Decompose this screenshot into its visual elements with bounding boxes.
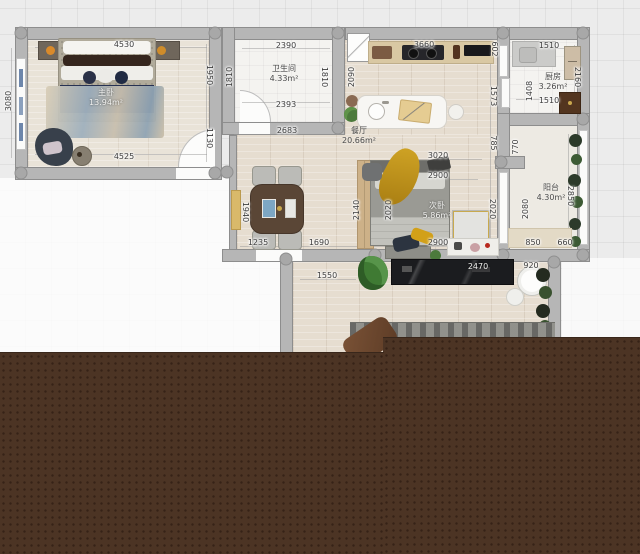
room-area: 4.33m² (270, 74, 299, 84)
dim-label: 4530 (114, 41, 134, 49)
door-opening-master[interactable] (176, 168, 212, 179)
kitchen-island[interactable] (357, 95, 447, 129)
dim-label: 1235 (248, 239, 268, 247)
dim-label: 1810 (226, 67, 234, 87)
dim-label: 4525 (114, 153, 134, 161)
overlay-3d-object-left[interactable] (0, 352, 384, 554)
room-label-balcony: 阳台 4.30m² (537, 183, 566, 203)
plant-row-living[interactable] (536, 268, 550, 282)
window-glass-mark (19, 69, 23, 87)
coffee-machine (372, 46, 392, 59)
armchair-pillow (42, 140, 63, 155)
sideboard-tan[interactable] (231, 190, 241, 230)
shoe-cabinet[interactable] (347, 33, 370, 62)
fridge-handle (568, 61, 577, 62)
cutting-board (398, 99, 432, 124)
table-decor-gold (277, 206, 282, 211)
sliding-door-kitchen-2[interactable] (501, 78, 510, 108)
dresser[interactable] (447, 238, 499, 256)
cosmetic-item-red (485, 243, 490, 248)
room-label-dining: 餐厅 20.66m² (342, 126, 376, 146)
kitchen-sink (519, 47, 537, 63)
dim-label: 850 (525, 239, 540, 247)
wall-joint[interactable] (209, 27, 222, 40)
room-area: 5.86m² (423, 211, 452, 221)
dim-label: 2020 (385, 200, 393, 220)
dim-label: 1690 (309, 239, 329, 247)
room-area: 3.26m² (539, 82, 568, 92)
cushion-gray[interactable] (362, 163, 382, 181)
room-label-master: 主卧 13.94m² (89, 88, 123, 108)
bed-cushion (115, 71, 128, 84)
plant-living[interactable] (358, 256, 388, 290)
window-balcony-right[interactable] (579, 130, 588, 245)
dim-label: 2390 (276, 42, 296, 50)
dim-label: 2900 (428, 239, 448, 247)
room-area: 20.66m² (342, 136, 376, 146)
dim-label: 2160 (573, 67, 581, 87)
plant-row-living[interactable] (536, 304, 550, 318)
dim-label: 1810 (320, 67, 328, 87)
window-master-left[interactable] (16, 58, 26, 150)
wall-joint[interactable] (209, 167, 222, 180)
bed-pillows-white (63, 41, 151, 54)
door-opening-bathroom[interactable] (239, 123, 270, 134)
sink-tap (382, 101, 389, 104)
dim-label: 3080 (5, 91, 13, 111)
armchair-master[interactable] (35, 128, 73, 166)
kitchen-cabinet[interactable] (559, 92, 581, 114)
nightstand-right[interactable] (152, 41, 180, 60)
dim-label: 1130 (205, 128, 213, 148)
cosmetic-item-pink (470, 243, 480, 252)
wall-joint[interactable] (577, 113, 590, 126)
dim-label: 920 (523, 262, 538, 270)
room-label-kitchen: 厨房 3.26m² (539, 72, 568, 92)
round-stool-small[interactable] (506, 288, 524, 306)
dim-label: 1950 (205, 65, 213, 85)
room-name: 阳台 (537, 183, 566, 193)
dim-label: 1940 (241, 202, 249, 222)
room-name: 餐厅 (342, 126, 376, 136)
wall-joint[interactable] (15, 167, 28, 180)
wall-joint[interactable] (15, 27, 28, 40)
dim-label: 602 (490, 41, 498, 56)
mirror[interactable] (452, 210, 490, 240)
wall-joint[interactable] (548, 256, 561, 269)
room-area: 4.30m² (537, 193, 566, 203)
placemat-blue (262, 199, 276, 218)
dim-label: 1510 (539, 42, 559, 50)
dim-label: 2090 (348, 67, 356, 87)
balcony-plant[interactable] (571, 154, 582, 165)
dim-label: 2470 (468, 263, 488, 271)
dim-label: 785 (489, 135, 497, 150)
room-label-bedroom2: 次卧 5.86m² (423, 201, 452, 221)
burner (426, 48, 437, 59)
window-glass-mark (19, 97, 23, 115)
wall-joint[interactable] (497, 27, 510, 40)
overlay-3d-object-right[interactable] (383, 337, 640, 554)
room-name: 主卧 (89, 88, 123, 98)
bed-pillows-brown (63, 55, 151, 66)
room-area: 13.94m² (89, 98, 123, 108)
dim-label: 2683 (277, 127, 297, 135)
dim-label: 2393 (276, 101, 296, 109)
room-label-bathroom: 卫生间 4.33m² (270, 64, 299, 84)
dining-chair[interactable] (278, 166, 302, 186)
balcony-plant[interactable] (569, 134, 582, 147)
floor-plan-canvas[interactable]: 主卧 13.94m² 厨房 3.26m² 阳台 (0, 0, 640, 554)
dining-table[interactable] (250, 184, 304, 234)
room-name: 厨房 (539, 72, 568, 82)
bed-cushion-white (97, 69, 114, 83)
stool[interactable] (448, 104, 464, 120)
cosmetic-item (454, 242, 462, 250)
side-table[interactable] (72, 146, 92, 166)
bed-cushion (83, 71, 96, 84)
dim-label: 770 (512, 139, 520, 154)
door-balcony[interactable] (499, 172, 508, 244)
dim-label: 2850 (566, 186, 574, 206)
wall-bath-right[interactable] (332, 27, 345, 135)
room-name: 卫生间 (270, 64, 299, 74)
wall-joint[interactable] (495, 156, 508, 169)
bottle (453, 45, 460, 59)
table-decor (77, 152, 82, 157)
wall-joint[interactable] (577, 27, 590, 40)
wall-joint[interactable] (577, 249, 590, 262)
wall-bath-top[interactable] (222, 27, 345, 40)
tv-console[interactable] (391, 259, 514, 285)
placemat-white (285, 199, 296, 218)
dim-label: 1510 (539, 97, 559, 105)
window-glass-mark (19, 123, 23, 141)
tv-decor (402, 266, 412, 272)
cabinet-knob (568, 101, 572, 105)
room-name: 次卧 (423, 201, 452, 211)
dim-label: 1408 (526, 81, 534, 101)
dim-label: 3660 (414, 41, 434, 49)
plant-row-living[interactable] (539, 286, 552, 299)
dim-label: 660 (557, 239, 572, 247)
wall-joint[interactable] (221, 166, 234, 179)
sliding-door-kitchen[interactable] (499, 45, 508, 77)
dim-label: 2080 (522, 199, 530, 219)
wall-joint[interactable] (280, 253, 293, 266)
flower-decor (157, 46, 166, 55)
wall-joint[interactable] (332, 27, 345, 40)
sink (368, 103, 385, 120)
dim-label: 1573 (489, 86, 497, 106)
microwave (464, 45, 491, 56)
dim-label: 2140 (353, 200, 361, 220)
dining-chair[interactable] (252, 166, 276, 186)
dim-label: 2900 (428, 172, 448, 180)
dim-label: 3020 (428, 152, 448, 160)
dim-label: 1550 (317, 272, 337, 280)
flower-decor (46, 46, 55, 55)
wall-living-left[interactable] (280, 253, 293, 354)
burner (408, 48, 419, 59)
canvas-white-area-right (562, 258, 640, 338)
dim-label: 2020 (488, 199, 496, 219)
